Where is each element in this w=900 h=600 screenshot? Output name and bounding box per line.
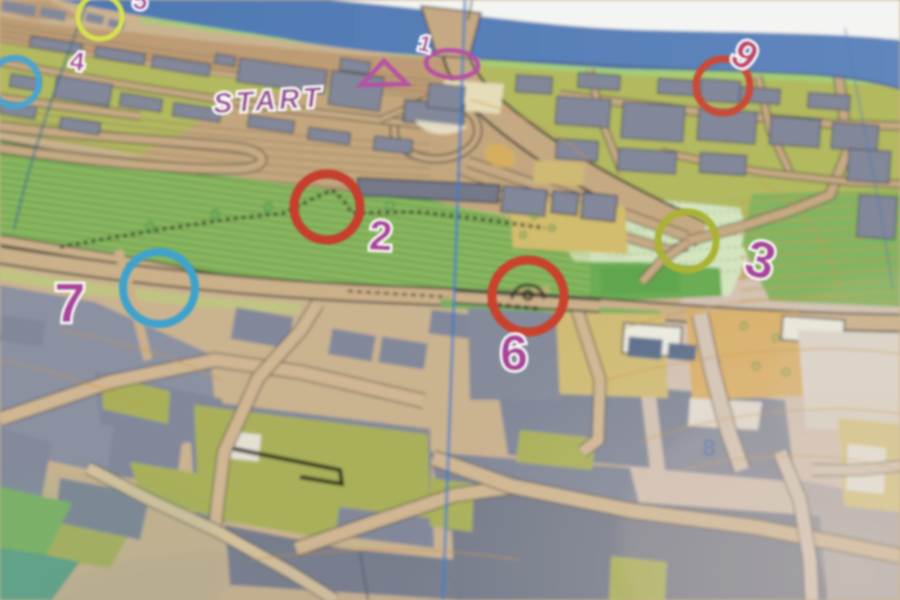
- svg-text:6: 6: [500, 325, 528, 381]
- svg-text:8: 8: [702, 435, 715, 462]
- svg-text:2: 2: [368, 211, 394, 259]
- svg-text:7: 7: [54, 271, 85, 334]
